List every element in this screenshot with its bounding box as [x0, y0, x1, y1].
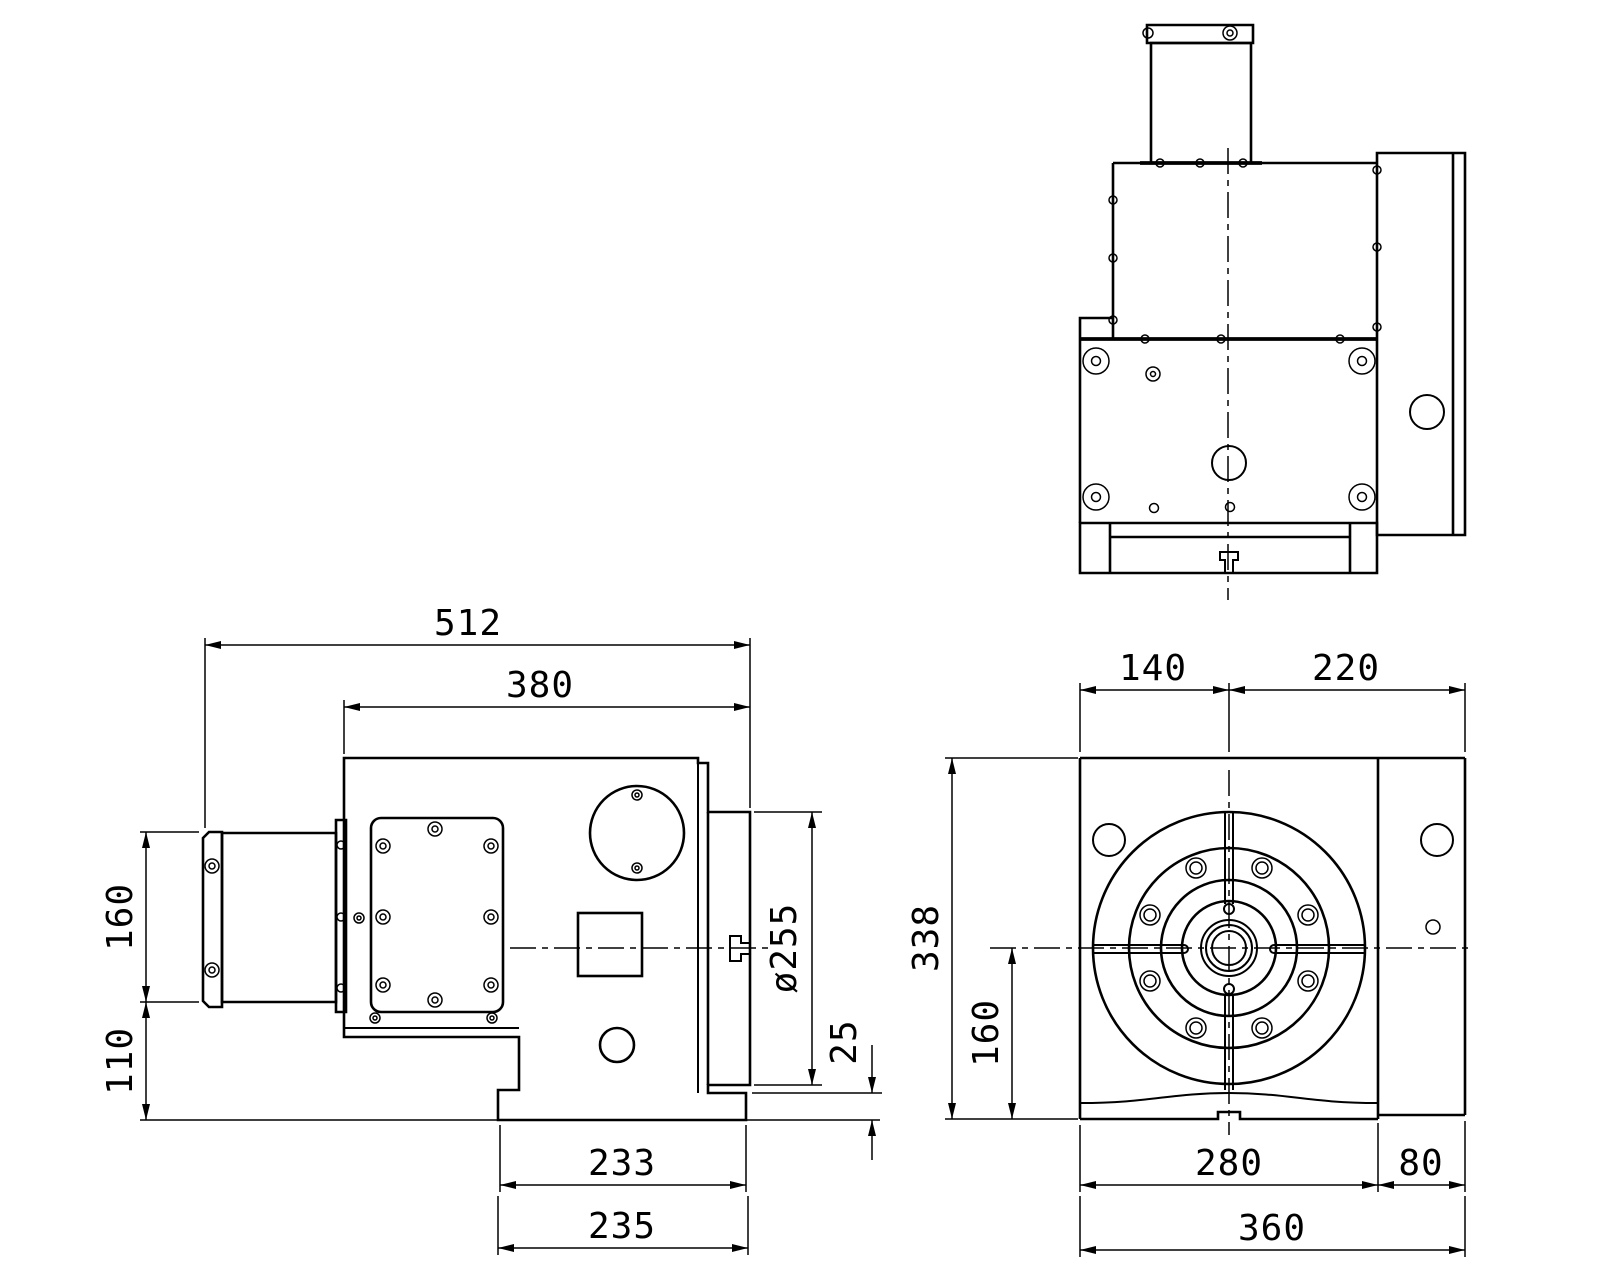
table-center-hole — [1212, 446, 1246, 480]
body-bottom-strip — [344, 1028, 519, 1037]
side-plate-hole — [1410, 395, 1444, 429]
dim-side-overall-width: 512 — [434, 603, 502, 644]
drawing-sheet: 512 380 160 110 ø255 25 233 235 — [0, 0, 1600, 1280]
dim-front-center-height: 160 — [966, 999, 1007, 1067]
side-plate-small-hole — [1426, 920, 1440, 934]
dim-front-body-width: 280 — [1195, 1143, 1263, 1184]
dim-side-motor-to-base: 110 — [100, 1027, 141, 1095]
top-view-geometry — [1080, 25, 1465, 600]
dim-side-base-top-width: 233 — [588, 1143, 656, 1184]
body-outline — [344, 758, 750, 1120]
cover-plate — [371, 818, 503, 1012]
side-plate-front-hole — [1421, 824, 1453, 856]
front-view: 140 220 338 160 280 80 360 — [906, 648, 1470, 1257]
dim-front-center-to-right: 220 — [1312, 648, 1380, 689]
motor-cap-side — [203, 832, 222, 1007]
side-plate — [1377, 153, 1465, 535]
corner-counterbores — [1083, 348, 1375, 510]
dim-side-body-width: 380 — [506, 665, 574, 706]
dim-front-center-to-left: 140 — [1119, 648, 1187, 689]
motor-cap-screw — [1143, 26, 1237, 40]
top-view — [1080, 25, 1465, 600]
dim-side-base-bottom-width: 235 — [588, 1206, 656, 1247]
cover-plate-screws — [354, 822, 498, 1007]
dim-side-motor-height: 160 — [100, 883, 141, 951]
side-view-geometry — [203, 758, 768, 1120]
lower-hole — [600, 1028, 634, 1062]
dim-front-side-plate-width: 80 — [1398, 1143, 1443, 1184]
gearbox-edge-screws — [1109, 159, 1247, 324]
dim-front-overall-width: 360 — [1238, 1208, 1306, 1249]
dim-side-faceplate-diameter: ø255 — [764, 903, 805, 994]
cad-drawing: 512 380 160 110 ø255 25 233 235 — [0, 0, 1600, 1280]
square-port — [578, 913, 642, 976]
front-view-geometry — [990, 758, 1470, 1135]
gearbox-housing — [1113, 163, 1377, 339]
front-top-left-hole — [1093, 824, 1125, 856]
motor-body-side — [222, 833, 336, 1002]
motor-body — [1151, 43, 1251, 163]
table-small-holes — [1146, 367, 1235, 513]
gearbox-left-step — [1080, 318, 1113, 339]
motor-screws — [205, 841, 345, 992]
side-view: 512 380 160 110 ø255 25 233 235 — [100, 603, 882, 1255]
front-body-outline — [1080, 758, 1465, 1119]
faceplate-tslot-mark — [1220, 552, 1238, 573]
dim-side-faceplate-clearance: 25 — [824, 1019, 865, 1064]
strip-screws — [370, 1013, 497, 1023]
side-view-dimensions: 512 380 160 110 ø255 25 233 235 — [100, 603, 882, 1255]
round-cover-screws — [632, 790, 642, 873]
dim-front-body-height: 338 — [906, 904, 947, 972]
